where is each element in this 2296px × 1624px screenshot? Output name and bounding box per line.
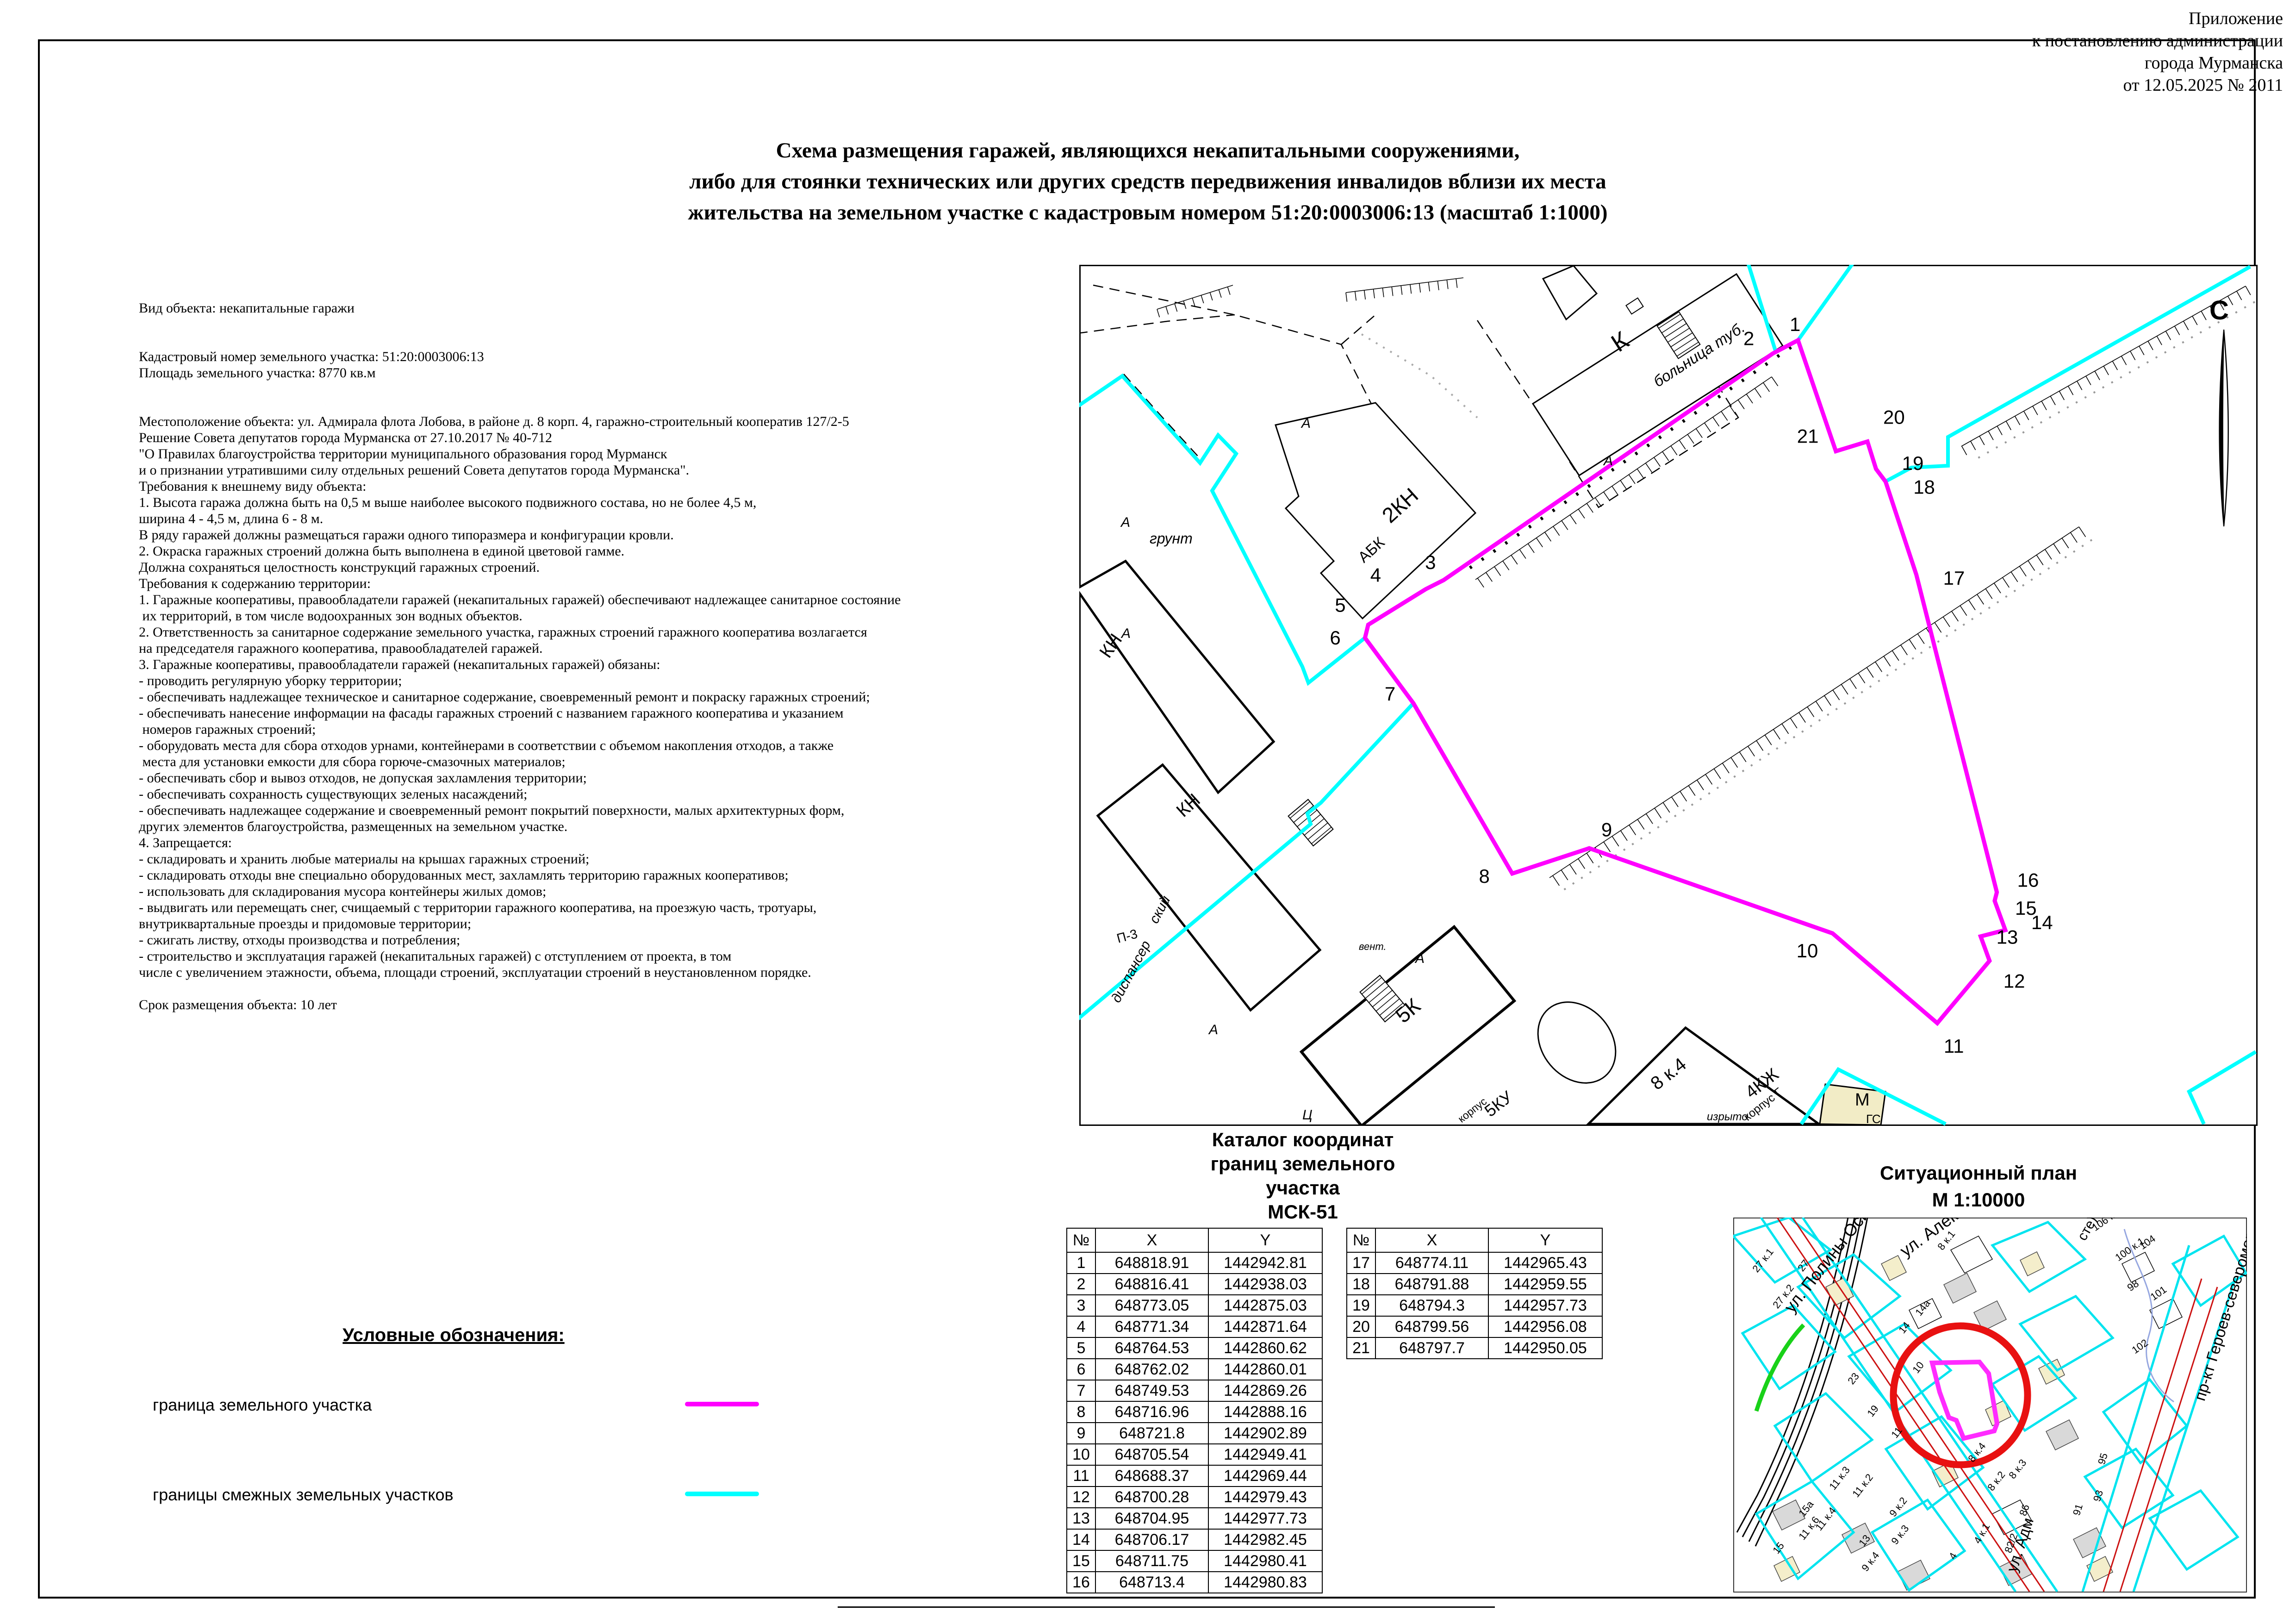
y-coordinate-cell: 1442982.45	[1208, 1529, 1322, 1550]
map-building-label: А	[1120, 626, 1131, 641]
x-coordinate-cell: 648713.4	[1095, 1572, 1208, 1593]
y-coordinate-cell: 1442979.43	[1208, 1487, 1322, 1508]
sit-title-line: М 1:10000	[1712, 1187, 2245, 1213]
point-number-cell: 16	[1067, 1572, 1095, 1593]
boundary-point-label: 15	[2015, 897, 2037, 919]
boundary-point-label: 7	[1385, 683, 1395, 705]
point-number-cell: 6	[1067, 1359, 1095, 1380]
map-building-label: А	[1300, 416, 1311, 431]
legend-item-label: границы смежных земельных участков	[153, 1485, 454, 1505]
situational-plan-map: ул. Полины Осипенкоул. Алексея Псте)пр-к…	[1733, 1218, 2247, 1593]
x-coordinate-cell: 648716.96	[1095, 1401, 1208, 1423]
x-coordinate-cell: 648762.02	[1095, 1359, 1208, 1380]
table-row: 16648713.41442980.83	[1067, 1572, 1322, 1593]
x-coordinate-cell: 648764.53	[1095, 1337, 1208, 1359]
point-number-cell: 14	[1067, 1529, 1095, 1550]
boundary-point-label: 4	[1370, 564, 1381, 586]
table-row: 21648797.71442950.05	[1347, 1337, 1602, 1359]
description-line: "О Правилах благоустройства территории м…	[139, 446, 1083, 462]
boundary-point-label: 12	[2004, 970, 2025, 992]
map-building-label: изрыто	[1707, 1111, 1748, 1123]
header-line: Приложение	[2032, 7, 2283, 30]
table-row: 19648794.31442957.73	[1347, 1295, 1602, 1316]
y-coordinate-cell: 1442956.08	[1488, 1316, 1602, 1337]
description-line: Решение Совета депутатов города Мурманск…	[139, 430, 1083, 446]
table-row: 13648704.951442977.73	[1067, 1508, 1322, 1529]
table-row: 5648764.531442860.62	[1067, 1337, 1322, 1359]
description-line	[139, 381, 1083, 397]
description-line: - сжигать листву, отходы производства и …	[139, 932, 1083, 948]
x-coordinate-cell: 648688.37	[1095, 1465, 1208, 1487]
legend-title: Условные обозначения:	[278, 1325, 629, 1346]
table-row: 1648818.911442942.81	[1067, 1252, 1322, 1274]
y-coordinate-cell: 1442977.73	[1208, 1508, 1322, 1529]
col-header-y: Y	[1488, 1228, 1602, 1252]
description-line: внутриквартальные проезды и придомовые т…	[139, 916, 1083, 932]
map-building-label: А	[1603, 453, 1613, 468]
col-header-x: X	[1375, 1228, 1488, 1252]
point-number-cell: 18	[1347, 1274, 1375, 1295]
boundary-point-label: 9	[1601, 818, 1612, 840]
description-line: 2. Окраска гаражных строений должна быть…	[139, 543, 1083, 559]
table-row: 7648749.531442869.26	[1067, 1380, 1322, 1401]
description-line: Требования к содержанию территории:	[139, 575, 1083, 592]
description-line: 1. Высота гаража должна быть на 0,5 м вы…	[139, 494, 1083, 511]
title-line: жительства на земельном участке с кадаст…	[42, 197, 2254, 228]
description-line: - использовать для складирования мусора …	[139, 883, 1083, 899]
description-line: 1. Гаражные кооперативы, правообладатели…	[139, 592, 1083, 608]
table-row: 8648716.961442888.16	[1067, 1401, 1322, 1423]
boundary-point-label: 5	[1335, 594, 1345, 616]
point-number-cell: 8	[1067, 1401, 1095, 1423]
table-row: 20648799.561442956.08	[1347, 1316, 1602, 1337]
x-coordinate-cell: 648799.56	[1375, 1316, 1488, 1337]
title-line: Схема размещения гаражей, являющихся нек…	[42, 135, 2254, 166]
table-row: 9648721.81442902.89	[1067, 1423, 1322, 1444]
table-row: 14648706.171442982.45	[1067, 1529, 1322, 1550]
description-line: 2. Ответственность за санитарное содержа…	[139, 624, 1083, 640]
x-coordinate-cell: 648706.17	[1095, 1529, 1208, 1550]
description-line: ширина 4 - 4,5 м, длина 6 - 8 м.	[139, 511, 1083, 527]
point-number-cell: 1	[1067, 1252, 1095, 1274]
description-line: на председателя гаражного кооператива, п…	[139, 640, 1083, 656]
y-coordinate-cell: 1442942.81	[1208, 1252, 1322, 1274]
description-line: - строительство и эксплуатация гаражей (…	[139, 948, 1083, 964]
x-coordinate-cell: 648705.54	[1095, 1444, 1208, 1465]
y-coordinate-cell: 1442969.44	[1208, 1465, 1322, 1487]
situational-plan-title: Ситуационный план М 1:10000	[1712, 1160, 2245, 1213]
description-line	[139, 332, 1083, 349]
description-line: Требования к внешнему виду объекта:	[139, 478, 1083, 494]
boundary-point-label: 19	[1902, 452, 1924, 474]
y-coordinate-cell: 1442902.89	[1208, 1423, 1322, 1444]
x-coordinate-cell: 648791.88	[1375, 1274, 1488, 1295]
x-coordinate-cell: 648700.28	[1095, 1487, 1208, 1508]
point-number-cell: 5	[1067, 1337, 1095, 1359]
point-number-cell: 12	[1067, 1487, 1095, 1508]
y-coordinate-cell: 1442869.26	[1208, 1380, 1322, 1401]
description-line: - обеспечивать надлежащее содержание и с…	[139, 802, 1083, 818]
boundary-point-label: 16	[2017, 869, 2039, 891]
description-line: номеров гаражных строений;	[139, 721, 1083, 737]
y-coordinate-cell: 1442938.03	[1208, 1274, 1322, 1295]
boundary-point-label: 11	[1944, 1035, 1964, 1057]
y-coordinate-cell: 1442875.03	[1208, 1295, 1322, 1316]
point-number-cell: 10	[1067, 1444, 1095, 1465]
catalog-caption-line: Каталог координат	[1152, 1128, 1453, 1152]
x-coordinate-cell: 648721.8	[1095, 1423, 1208, 1444]
description-line: - обеспечивать сохранность существующих …	[139, 786, 1083, 802]
map-building-label: ГС	[1866, 1112, 1881, 1126]
description-line: Должна сохраняться целостность конструкц…	[139, 559, 1083, 575]
table-row: 17648774.111442965.43	[1347, 1252, 1602, 1274]
point-number-cell: 4	[1067, 1316, 1095, 1337]
north-label: С	[2209, 295, 2229, 325]
col-header-x: X	[1095, 1228, 1208, 1252]
description-line: - выдвигать или перемещать снег, счищаем…	[139, 899, 1083, 916]
bottom-rule	[838, 1606, 1495, 1608]
description-line: - складировать отходы вне специально обо…	[139, 867, 1083, 883]
boundary-point-label: 13	[1997, 926, 2018, 948]
y-coordinate-cell: 1442965.43	[1488, 1252, 1602, 1274]
table-row: 12648700.281442979.43	[1067, 1487, 1322, 1508]
x-coordinate-cell: 648773.05	[1095, 1295, 1208, 1316]
description-line: 4. Запрещается:	[139, 835, 1083, 851]
object-description: Вид объекта: некапитальные гаражи Кадаст…	[139, 300, 1083, 1013]
table-row: 6648762.021442860.01	[1067, 1359, 1322, 1380]
boundary-point-label: 6	[1330, 627, 1340, 649]
x-coordinate-cell: 648797.7	[1375, 1337, 1488, 1359]
catalog-caption-line: границ земельного	[1152, 1152, 1453, 1176]
table-row: 11648688.371442969.44	[1067, 1465, 1322, 1487]
description-line: Кадастровый номер земельного участка: 51…	[139, 349, 1083, 365]
x-coordinate-cell: 648704.95	[1095, 1508, 1208, 1529]
description-line: места для установки емкости для сбора го…	[139, 754, 1083, 770]
map-building-label: А	[1414, 951, 1425, 966]
map-building-label: вент.	[1359, 941, 1387, 952]
point-number-cell: 11	[1067, 1465, 1095, 1487]
x-coordinate-cell: 648818.91	[1095, 1252, 1208, 1274]
map-building-label: А	[1120, 515, 1130, 530]
y-coordinate-cell: 1442871.64	[1208, 1316, 1322, 1337]
x-coordinate-cell: 648771.34	[1095, 1316, 1208, 1337]
boundary-point-label: 3	[1425, 551, 1436, 573]
legend-swatch-boundary	[685, 1402, 759, 1406]
point-number-cell: 9	[1067, 1423, 1095, 1444]
description-line: В ряду гаражей должны размещаться гаражи…	[139, 527, 1083, 543]
x-coordinate-cell: 648816.41	[1095, 1274, 1208, 1295]
document-page: Приложение к постановлению администрации…	[0, 0, 2296, 1624]
table-row: 4648771.341442871.64	[1067, 1316, 1322, 1337]
table-row: 10648705.541442949.41	[1067, 1444, 1322, 1465]
boundary-point-label: 10	[1797, 940, 1818, 962]
sit-title-line: Ситуационный план	[1712, 1160, 2245, 1187]
y-coordinate-cell: 1442980.41	[1208, 1550, 1322, 1572]
description-line: и о признании утратившими силу отдельных…	[139, 462, 1083, 478]
y-coordinate-cell: 1442860.01	[1208, 1359, 1322, 1380]
col-header-num: №	[1347, 1228, 1375, 1252]
x-coordinate-cell: 648774.11	[1375, 1252, 1488, 1274]
description-line: Местоположение объекта: ул. Адмирала фло…	[139, 413, 1083, 430]
table-row: 18648791.881442959.55	[1347, 1274, 1602, 1295]
y-coordinate-cell: 1442860.62	[1208, 1337, 1322, 1359]
boundary-point-label: 17	[1943, 567, 1965, 589]
description-line: числе с увеличением этажности, объема, п…	[139, 964, 1083, 981]
point-number-cell: 17	[1347, 1252, 1375, 1274]
map-building-label: М	[1855, 1090, 1870, 1110]
point-number-cell: 13	[1067, 1508, 1095, 1529]
description-line: - обеспечивать сбор и вывоз отходов, не …	[139, 770, 1083, 786]
title-line: либо для стоянки технических или других …	[42, 166, 2254, 197]
y-coordinate-cell: 1442888.16	[1208, 1401, 1322, 1423]
boundary-point-label: 21	[1797, 425, 1819, 447]
description-line: других элементов благоустройства, размещ…	[139, 818, 1083, 835]
boundary-point-label: 8	[1479, 865, 1490, 887]
coordinates-table-1: № X Y 1648818.911442942.812648816.411442…	[1066, 1228, 1323, 1593]
catalog-caption-line: участка	[1152, 1176, 1453, 1200]
description-line: их территорий, в том числе водоохранных …	[139, 608, 1083, 624]
table-row: 2648816.411442938.03	[1067, 1274, 1322, 1295]
y-coordinate-cell: 1442949.41	[1208, 1444, 1322, 1465]
description-line: - обеспечивать нанесение информации на ф…	[139, 705, 1083, 721]
col-header-num: №	[1067, 1228, 1095, 1252]
legend-swatch-adjacent	[685, 1492, 759, 1496]
point-number-cell: 3	[1067, 1295, 1095, 1316]
coordinates-table-2: № X Y 17648774.111442965.4318648791.8814…	[1346, 1228, 1603, 1359]
point-number-cell: 7	[1067, 1380, 1095, 1401]
y-coordinate-cell: 1442959.55	[1488, 1274, 1602, 1295]
point-number-cell: 20	[1347, 1316, 1375, 1337]
catalog-caption: Каталог координат границ земельного учас…	[1152, 1128, 1453, 1224]
point-number-cell: 15	[1067, 1550, 1095, 1572]
map-building-label: А	[1208, 1022, 1218, 1037]
description-line	[139, 397, 1083, 413]
description-line: Площадь земельного участка: 8770 кв.м	[139, 365, 1083, 381]
x-coordinate-cell: 648711.75	[1095, 1550, 1208, 1572]
catalog-caption-line: МСК-51	[1152, 1200, 1453, 1224]
description-line: - складировать и хранить любые материалы…	[139, 851, 1083, 867]
description-line: - оборудовать места для сбора отходов ур…	[139, 737, 1083, 754]
y-coordinate-cell: 1442950.05	[1488, 1337, 1602, 1359]
description-line: Срок размещения объекта: 10 лет	[139, 997, 1083, 1013]
description-line: - обеспечивать надлежащее техническое и …	[139, 689, 1083, 705]
point-number-cell: 2	[1067, 1274, 1095, 1295]
point-number-cell: 21	[1347, 1337, 1375, 1359]
y-coordinate-cell: 1442980.83	[1208, 1572, 1322, 1593]
page-title: Схема размещения гаражей, являющихся нек…	[42, 135, 2254, 228]
description-line	[139, 316, 1083, 332]
x-coordinate-cell: 648794.3	[1375, 1295, 1488, 1316]
boundary-point-label: 1	[1790, 313, 1800, 335]
x-coordinate-cell: 648749.53	[1095, 1380, 1208, 1401]
legend-item-label: граница земельного участка	[153, 1395, 372, 1415]
description-line: - проводить регулярную уборку территории…	[139, 673, 1083, 689]
description-line: Вид объекта: некапитальные гаражи	[139, 300, 1083, 316]
boundary-point-label: 20	[1883, 406, 1905, 428]
table-row: 3648773.051442875.03	[1067, 1295, 1322, 1316]
site-plan-map: 123456789101112131415161718192021 2КНАБК…	[1079, 265, 2258, 1126]
description-line: 3. Гаражные кооперативы, правообладатели…	[139, 656, 1083, 673]
col-header-y: Y	[1208, 1228, 1322, 1252]
map-building-label: грунт	[1150, 530, 1193, 547]
description-line	[139, 981, 1083, 997]
table-row: 15648711.751442980.41	[1067, 1550, 1322, 1572]
y-coordinate-cell: 1442957.73	[1488, 1295, 1602, 1316]
map-building-label: Ц	[1302, 1107, 1313, 1123]
point-number-cell: 19	[1347, 1295, 1375, 1316]
boundary-point-label: 18	[1913, 476, 1935, 498]
